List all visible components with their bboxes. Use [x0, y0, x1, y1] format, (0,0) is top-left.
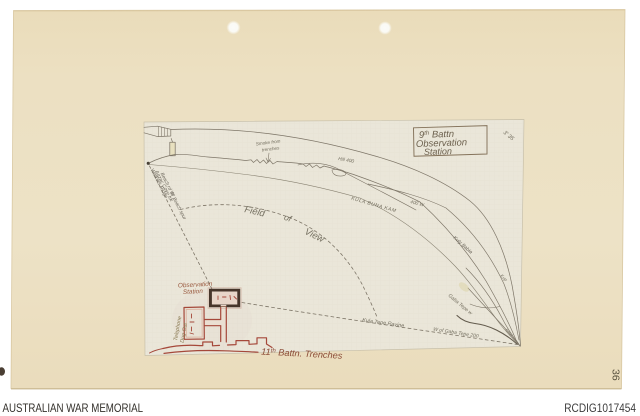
svg-text:36: 36 — [610, 369, 622, 381]
svg-text:Station: Station — [424, 146, 452, 157]
svg-text:RCDIG1017454: RCDIG1017454 — [564, 402, 636, 415]
svg-text:AUSTRALIAN WAR MEMORIAL: AUSTRALIAN WAR MEMORIAL — [3, 402, 144, 415]
svg-text:Station: Station — [183, 288, 204, 296]
